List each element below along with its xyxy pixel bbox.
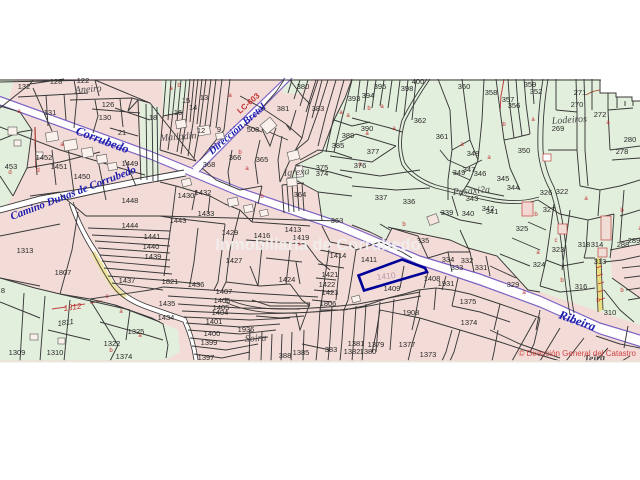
svg-text:1325: 1325 (128, 327, 145, 336)
svg-text:348: 348 (467, 149, 480, 158)
svg-text:16: 16 (174, 108, 182, 117)
svg-text:310: 310 (604, 308, 617, 317)
svg-text:1385: 1385 (293, 348, 310, 357)
svg-text:1434: 1434 (158, 313, 175, 322)
svg-text:1430: 1430 (178, 191, 195, 200)
svg-text:1374: 1374 (116, 352, 133, 361)
svg-text:361: 361 (436, 132, 449, 141)
svg-text:350: 350 (518, 146, 531, 155)
svg-text:1444: 1444 (122, 221, 139, 230)
svg-text:1400: 1400 (204, 329, 221, 338)
svg-text:9: 9 (217, 125, 221, 134)
svg-text:18: 18 (149, 113, 157, 122)
svg-text:1411: 1411 (361, 255, 377, 264)
svg-text:1382: 1382 (344, 347, 361, 356)
svg-text:345: 345 (497, 174, 510, 183)
svg-text:1931: 1931 (438, 279, 455, 288)
svg-text:d: d (36, 168, 39, 174)
svg-text:365: 365 (256, 155, 269, 164)
svg-text:340: 340 (462, 209, 475, 218)
svg-text:Soira: Soira (244, 333, 266, 345)
svg-text:1309: 1309 (9, 348, 26, 357)
svg-text:368: 368 (203, 160, 216, 169)
svg-text:356: 356 (508, 101, 521, 110)
svg-text:© Dirección General del Catast: © Dirección General del Catastro (519, 349, 637, 358)
svg-text:272: 272 (594, 110, 607, 119)
svg-text:393: 393 (348, 94, 361, 103)
svg-text:324: 324 (533, 260, 546, 269)
svg-text:388: 388 (279, 351, 292, 360)
svg-text:1374: 1374 (461, 318, 478, 327)
svg-text:352: 352 (530, 87, 543, 96)
svg-text:1409: 1409 (384, 284, 401, 293)
svg-text:366: 366 (229, 153, 242, 162)
svg-text:1313: 1313 (17, 246, 34, 255)
svg-text:1433: 1433 (198, 209, 215, 218)
svg-text:1421: 1421 (322, 270, 339, 279)
svg-text:1452: 1452 (36, 153, 53, 162)
svg-text:Igrexa: Igrexa (282, 166, 309, 179)
svg-text:360: 360 (458, 82, 471, 91)
svg-text:313: 313 (594, 257, 607, 266)
svg-text:377: 377 (367, 147, 380, 156)
svg-text:13: 13 (200, 93, 208, 102)
svg-text:331: 331 (475, 263, 488, 272)
svg-text:1399: 1399 (201, 338, 218, 347)
svg-text:395: 395 (374, 82, 387, 91)
svg-text:1310: 1310 (47, 348, 64, 357)
svg-text:358: 358 (485, 88, 498, 97)
svg-text:1377: 1377 (399, 340, 416, 349)
svg-text:374: 374 (316, 169, 329, 178)
svg-text:1439: 1439 (145, 252, 162, 261)
svg-text:1821: 1821 (162, 277, 179, 286)
svg-text:400: 400 (412, 77, 425, 86)
svg-text:278: 278 (616, 147, 629, 156)
svg-text:337: 337 (375, 193, 388, 202)
svg-text:322: 322 (556, 187, 569, 196)
svg-text:362: 362 (414, 116, 427, 125)
svg-text:270: 270 (571, 100, 584, 109)
svg-text:364: 364 (294, 190, 307, 199)
svg-text:1423: 1423 (322, 288, 339, 297)
svg-text:1441: 1441 (144, 232, 161, 241)
svg-text:1443: 1443 (170, 216, 187, 225)
svg-text:14: 14 (189, 103, 197, 112)
svg-text:341: 341 (486, 207, 499, 216)
svg-text:Inmobiliaria de Corrubedo: Inmobiliaria de Corrubedo (215, 236, 420, 254)
svg-text:1451: 1451 (51, 162, 68, 171)
svg-text:327: 327 (543, 205, 556, 214)
svg-text:453: 453 (5, 162, 18, 171)
svg-text:1432: 1432 (195, 188, 212, 197)
svg-text:1440: 1440 (143, 242, 160, 251)
svg-text:380: 380 (297, 82, 310, 91)
svg-text:394: 394 (362, 91, 375, 100)
svg-text:1401: 1401 (206, 317, 223, 326)
svg-text:336: 336 (403, 197, 416, 206)
svg-text:329: 329 (507, 280, 520, 289)
svg-text:1404: 1404 (212, 308, 229, 317)
svg-text:1436: 1436 (188, 280, 205, 289)
svg-text:130: 130 (99, 113, 112, 122)
svg-text:128: 128 (50, 77, 63, 86)
svg-text:349: 349 (453, 168, 466, 177)
svg-text:326: 326 (540, 188, 553, 197)
svg-text:1375: 1375 (460, 297, 477, 306)
svg-text:12: 12 (197, 126, 205, 135)
svg-text:316: 316 (575, 282, 588, 291)
svg-text:1424: 1424 (279, 275, 296, 284)
svg-text:Aneiro: Aneiro (73, 83, 102, 96)
svg-text:1435: 1435 (159, 299, 176, 308)
svg-text:1450: 1450 (74, 172, 91, 181)
svg-text:132: 132 (18, 82, 31, 91)
svg-text:346: 346 (474, 169, 487, 178)
svg-text:1908: 1908 (403, 308, 420, 317)
svg-text:383: 383 (312, 104, 325, 113)
svg-text:c: c (106, 294, 109, 300)
svg-text:1407: 1407 (216, 287, 233, 296)
svg-text:1448: 1448 (122, 196, 139, 205)
svg-text:8: 8 (1, 286, 5, 295)
svg-text:21: 21 (118, 128, 126, 137)
svg-text:389: 389 (342, 131, 355, 140)
svg-text:1410: 1410 (376, 270, 396, 282)
svg-text:1427: 1427 (226, 256, 243, 265)
svg-text:314: 314 (591, 240, 604, 249)
svg-text:1437: 1437 (119, 276, 136, 285)
svg-text:1373: 1373 (420, 350, 437, 359)
svg-text:1322: 1322 (104, 339, 121, 348)
svg-text:339: 339 (441, 208, 454, 217)
svg-text:289: 289 (628, 236, 640, 245)
svg-text:280: 280 (624, 135, 637, 144)
svg-text:c: c (555, 238, 558, 244)
svg-text:1807: 1807 (55, 268, 72, 277)
svg-text:126: 126 (102, 100, 115, 109)
svg-text:383: 383 (325, 345, 338, 354)
svg-text:1806: 1806 (320, 299, 337, 308)
svg-text:376: 376 (354, 161, 367, 170)
svg-text:1380: 1380 (360, 347, 377, 356)
svg-text:385: 385 (332, 141, 345, 150)
svg-text:344: 344 (507, 183, 520, 192)
svg-text:271: 271 (574, 88, 587, 97)
svg-text:363: 363 (331, 216, 344, 225)
svg-text:390: 390 (361, 124, 374, 133)
svg-text:131: 131 (44, 108, 57, 117)
svg-text:318: 318 (578, 240, 591, 249)
svg-text:381: 381 (277, 104, 290, 113)
svg-text:323: 323 (552, 245, 565, 254)
svg-text:332: 332 (461, 256, 474, 265)
svg-text:325: 325 (516, 224, 529, 233)
